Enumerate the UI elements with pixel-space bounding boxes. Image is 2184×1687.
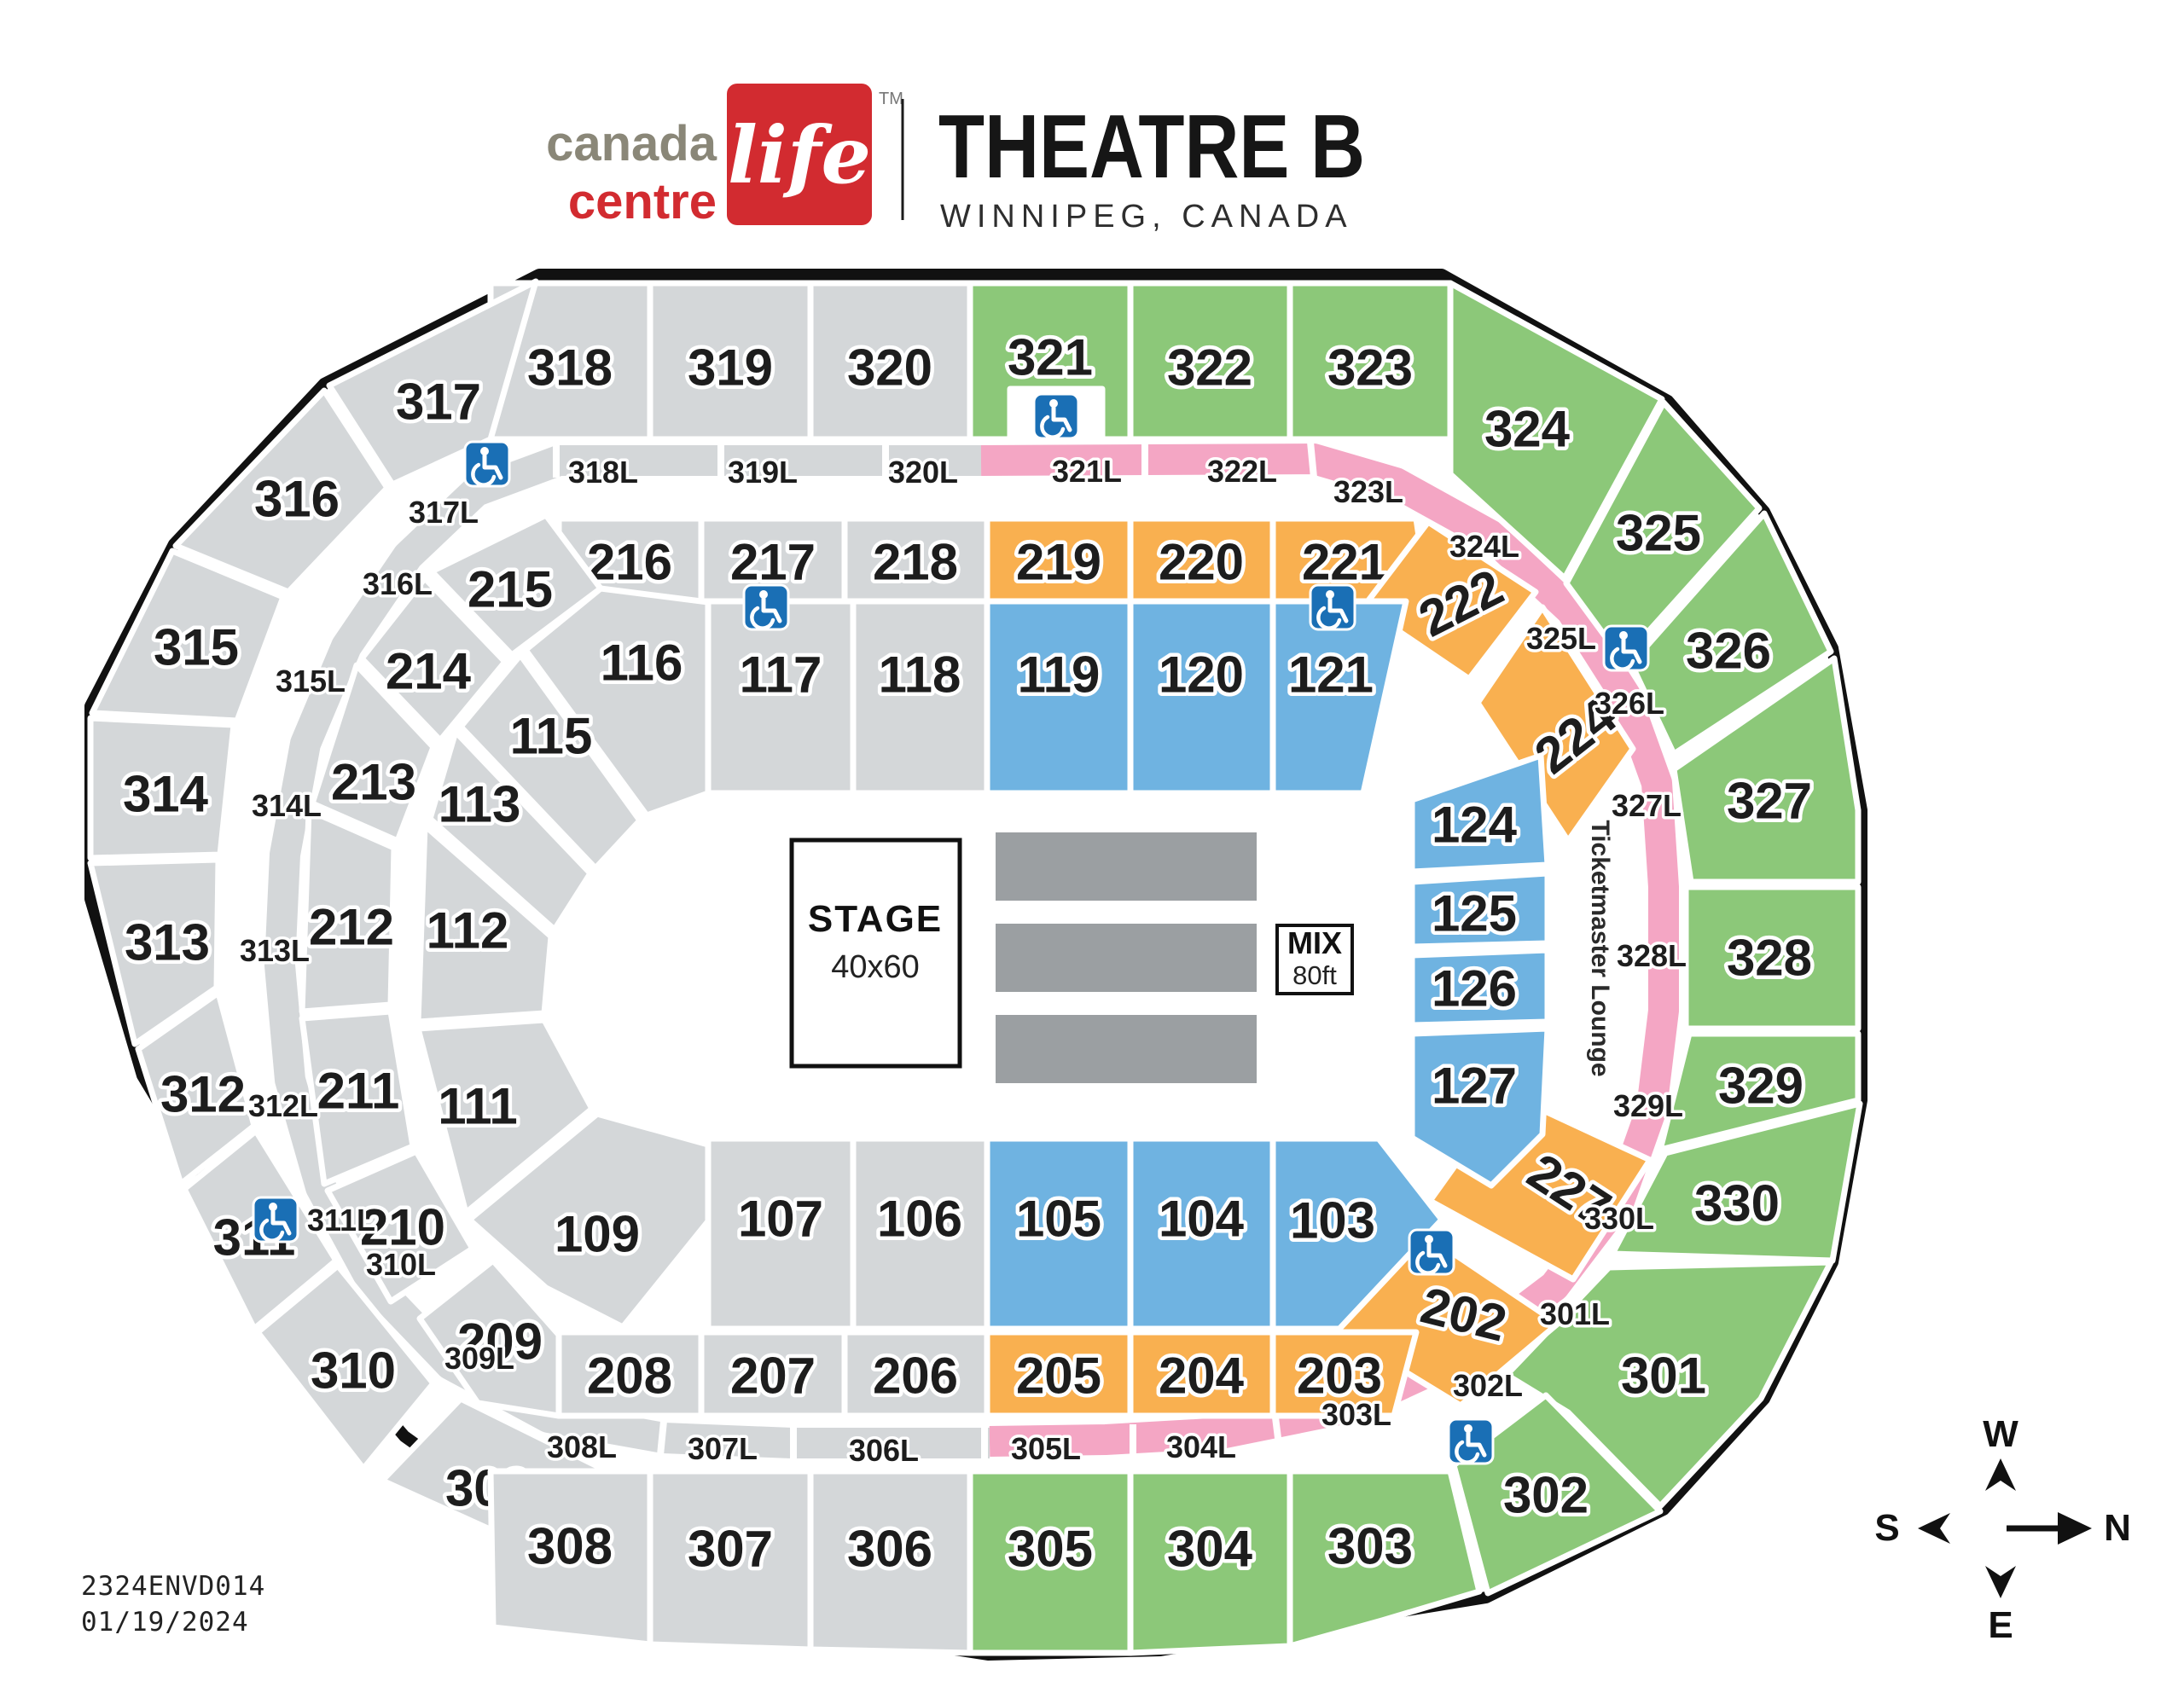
band-label-317L[interactable]: 317L (409, 495, 479, 530)
section-label: 126 (1432, 960, 1517, 1017)
wheelchair-icon (1409, 1230, 1454, 1274)
band-label-325L[interactable]: 325L (1526, 621, 1596, 656)
band-label-316L[interactable]: 316L (363, 566, 433, 601)
section-label: 104 (1159, 1191, 1245, 1248)
section-204[interactable]: 204 (1130, 1332, 1273, 1416)
section-label: 314 (123, 766, 209, 823)
section-label: 303 (1327, 1518, 1413, 1575)
section-label: 217 (730, 534, 816, 591)
section-label: 117 (740, 646, 822, 704)
section-label: 304 (1167, 1521, 1253, 1578)
band-label-308L[interactable]: 308L (547, 1429, 617, 1464)
section-label: 307 (688, 1521, 773, 1578)
section-306[interactable]: 306 (810, 1471, 970, 1653)
section-label: 119 (1018, 646, 1101, 704)
section-label: 124 (1432, 797, 1518, 854)
brand-word-canada: canada (546, 116, 717, 171)
section-323[interactable]: 323 (1290, 283, 1450, 439)
compass-north: N (2104, 1507, 2131, 1549)
section-label: 207 (730, 1348, 816, 1405)
mix-label: MIX (1287, 925, 1342, 960)
section-label: 203 (1297, 1348, 1382, 1405)
section-label: 118 (879, 646, 961, 704)
page-title: THEATRE B (938, 96, 1365, 197)
section-label: 308 (527, 1518, 613, 1575)
section-303[interactable]: 303 (1290, 1471, 1479, 1646)
stage-label: STAGE (808, 898, 943, 940)
band-label-309L[interactable]: 309L (444, 1341, 514, 1376)
section-label: 329 (1718, 1058, 1804, 1115)
section-219[interactable]: 219 (987, 519, 1130, 601)
section-label: 105 (1016, 1191, 1101, 1248)
section-308[interactable]: 308 (491, 1471, 650, 1644)
section-206[interactable]: 206 (845, 1332, 987, 1416)
section-label: 327 (1727, 773, 1812, 830)
section-label: 103 (1290, 1192, 1375, 1249)
arena-seating-map: 3183193203213223233173243163253153263143… (0, 0, 2184, 1687)
section-207[interactable]: 207 (701, 1332, 845, 1416)
wheelchair-icon (1604, 626, 1648, 670)
section-label: 215 (468, 561, 553, 618)
section-304[interactable]: 304 (1130, 1471, 1290, 1653)
band-label-330L[interactable]: 330L (1584, 1201, 1654, 1236)
section-label: 317 (396, 374, 481, 431)
band-label-314L[interactable]: 314L (252, 788, 322, 823)
stage-size: 40x60 (831, 949, 920, 985)
wheelchair-icon (1310, 585, 1355, 629)
section-label: 211 (317, 1063, 400, 1120)
section-label: 112 (427, 902, 509, 959)
section-label: 212 (309, 899, 394, 956)
section-118[interactable]: 118 (853, 601, 987, 793)
band-label-305L[interactable]: 305L (1011, 1431, 1081, 1466)
section-label: 315 (154, 619, 239, 676)
section-label: 325 (1616, 505, 1701, 562)
section-205[interactable]: 205 (987, 1332, 1130, 1416)
section-104[interactable]: 104 (1130, 1139, 1273, 1329)
band-label-315L[interactable]: 315L (276, 664, 346, 699)
section-label: 316 (254, 471, 340, 528)
section-106[interactable]: 106 (853, 1139, 987, 1329)
band-label-313L[interactable]: 313L (240, 933, 310, 968)
chart-date: 01/19/2024 (81, 1607, 249, 1638)
section-label: 220 (1159, 534, 1244, 591)
band-label-302L[interactable]: 302L (1453, 1368, 1523, 1403)
section-105[interactable]: 105 (987, 1139, 1130, 1329)
compass-south: S (1874, 1507, 1899, 1549)
section-label: 318 (527, 339, 613, 397)
section-120[interactable]: 120 (1130, 601, 1273, 793)
section-label: 305 (1008, 1521, 1093, 1578)
section-label: 221 (1302, 534, 1387, 591)
wheelchair-icon (253, 1197, 298, 1242)
compass-down-arrow (1985, 1566, 2016, 1598)
band-divider (1310, 442, 1314, 478)
section-label: 204 (1159, 1348, 1245, 1405)
band-label-303L[interactable]: 303L (1321, 1397, 1391, 1432)
compass: W S N E (1874, 1413, 2131, 1646)
section-label: 120 (1159, 646, 1244, 704)
section-label: 321 (1008, 329, 1093, 386)
band-label-311L[interactable]: 311L (307, 1203, 375, 1238)
band-label-327L[interactable]: 327L (1612, 788, 1682, 823)
section-label: 107 (738, 1191, 823, 1248)
floor-seating-block[interactable] (996, 1015, 1257, 1083)
wheelchair-icon (1449, 1419, 1493, 1464)
compass-west: W (1983, 1413, 2018, 1455)
section-label: 106 (877, 1191, 962, 1248)
section-126[interactable]: 126 (1412, 950, 1548, 1025)
section-208[interactable]: 208 (559, 1332, 701, 1416)
section-label: 312 (160, 1066, 246, 1123)
band-label-321L[interactable]: 321L (1052, 454, 1122, 489)
ticketmaster-lounge-label: Ticketmaster Lounge (1586, 820, 1614, 1076)
section-119[interactable]: 119 (987, 601, 1130, 793)
wheelchair-icon (465, 442, 509, 486)
band-label-319L[interactable]: 319L (728, 455, 798, 490)
band-label-318L[interactable]: 318L (568, 455, 638, 490)
wheelchair-icon (744, 585, 788, 629)
compass-east: E (1988, 1604, 2013, 1646)
section-label: 121 (1288, 646, 1374, 704)
compass-up-arrow (1985, 1458, 2016, 1491)
section-label: 113 (439, 776, 521, 833)
section-label: 302 (1503, 1467, 1589, 1524)
section-label: 206 (873, 1348, 958, 1405)
section-label: 216 (587, 534, 672, 591)
section-label: 328 (1727, 930, 1812, 987)
section-label: 213 (331, 754, 416, 811)
section-label: 326 (1686, 623, 1771, 680)
band-label-312L[interactable]: 312L (248, 1088, 318, 1123)
band-label-328L[interactable]: 328L (1617, 938, 1687, 973)
section-320[interactable]: 320 (810, 283, 970, 439)
section-label: 324 (1484, 401, 1571, 458)
mix-size: 80ft (1292, 960, 1337, 990)
band-label-320L[interactable]: 320L (888, 455, 958, 490)
section-label: 127 (1432, 1058, 1517, 1115)
page-subtitle: WINNIPEG, CANADA (940, 199, 1353, 235)
band-divider (660, 1421, 664, 1455)
section-label: 109 (555, 1206, 640, 1263)
section-212[interactable]: 212 (302, 810, 394, 1012)
band-label-310L[interactable]: 310L (366, 1247, 436, 1282)
section-label: 306 (847, 1521, 932, 1578)
section-label: 330 (1694, 1175, 1780, 1232)
section-label: 313 (125, 914, 210, 971)
band-label-329L[interactable]: 329L (1613, 1088, 1683, 1123)
section-322[interactable]: 322 (1130, 283, 1290, 439)
section-label: 205 (1016, 1348, 1101, 1405)
section-label: 115 (510, 708, 593, 765)
band-label-323L[interactable]: 323L (1333, 474, 1403, 509)
section-label: 219 (1016, 534, 1101, 591)
section-218[interactable]: 218 (845, 519, 987, 601)
chart-code: 2324ENVD014 (81, 1571, 265, 1602)
section-107[interactable]: 107 (708, 1139, 853, 1329)
band-label-306L[interactable]: 306L (849, 1433, 919, 1468)
section-label: 301 (1621, 1348, 1706, 1405)
seating-chart-page: 3183193203213223233173243163253153263143… (0, 0, 2184, 1687)
section-label: 125 (1432, 885, 1517, 942)
band-label-301L[interactable]: 301L (1540, 1296, 1610, 1331)
section-label: 310 (311, 1342, 396, 1400)
brand-word-centre: centre (568, 174, 717, 229)
band-label-304L[interactable]: 304L (1166, 1429, 1236, 1464)
section-305[interactable]: 305 (970, 1471, 1130, 1653)
brand-word-life: life (728, 109, 871, 201)
compass-left-arrow (1918, 1513, 1950, 1544)
section-label: 116 (601, 635, 683, 692)
section-label: 319 (688, 339, 773, 397)
compass-right-arrow (2058, 1512, 2092, 1545)
wheelchair-icon (1034, 394, 1078, 438)
section-label: 323 (1327, 339, 1413, 397)
band-label-326L[interactable]: 326L (1594, 686, 1664, 721)
floor-seating-block[interactable] (996, 832, 1257, 901)
brand-tm-mark: TM (879, 90, 903, 108)
section-307[interactable]: 307 (650, 1471, 810, 1649)
section-label: 214 (386, 643, 472, 700)
section-label: 322 (1167, 339, 1252, 397)
header: canada centre life TM THEATRE B WINNIPEG… (546, 84, 1365, 235)
section-label: 320 (847, 339, 932, 397)
section-label: 208 (587, 1348, 672, 1405)
section-125[interactable]: 125 (1412, 873, 1548, 947)
section-319[interactable]: 319 (650, 283, 810, 439)
band-label-324L[interactable]: 324L (1449, 529, 1519, 564)
band-divider (1275, 1417, 1280, 1452)
floor-seating-block[interactable] (996, 924, 1257, 992)
band-label-307L[interactable]: 307L (688, 1431, 758, 1466)
band-label-322L[interactable]: 322L (1207, 454, 1277, 489)
section-328[interactable]: 328 (1686, 887, 1858, 1029)
section-220[interactable]: 220 (1130, 519, 1273, 601)
section-314[interactable]: 314 (90, 718, 234, 858)
section-label: 111 (438, 1078, 518, 1135)
section-label: 218 (873, 534, 958, 591)
